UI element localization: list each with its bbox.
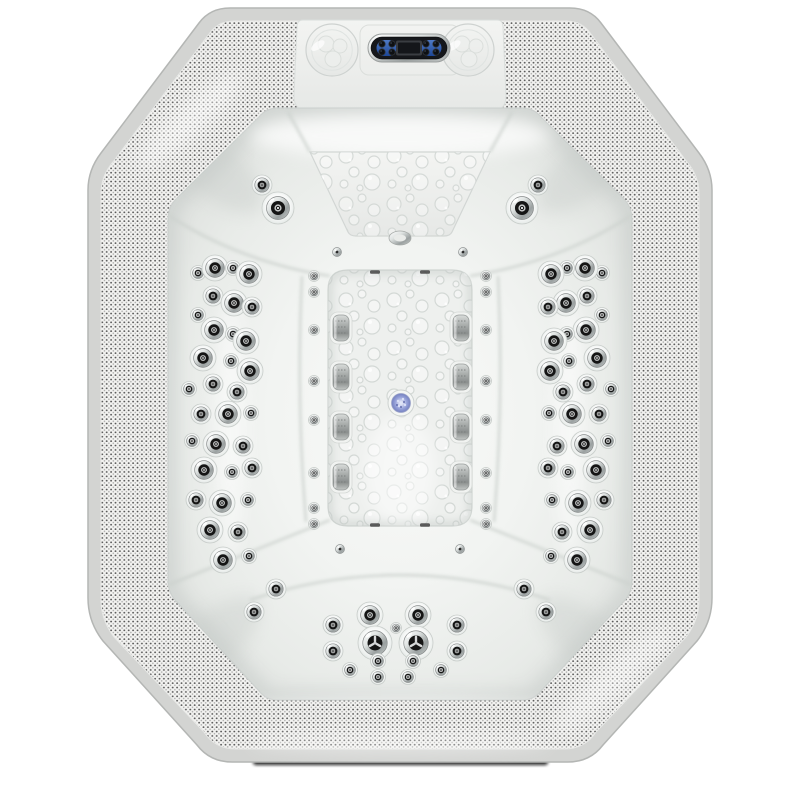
pillow-jet [450, 312, 472, 344]
jet [233, 436, 253, 456]
jet [481, 271, 492, 282]
pillow-jet [330, 361, 352, 393]
jet [309, 376, 320, 387]
panel-button [389, 49, 395, 55]
jet [447, 641, 467, 661]
oval-chrome-fitting [389, 231, 411, 245]
floor-drain-light [388, 390, 414, 416]
rim-sheen [250, 730, 550, 754]
jet [565, 490, 591, 516]
panel-button [423, 41, 429, 47]
pillow-jet [450, 461, 472, 493]
jet [242, 549, 257, 564]
pillow-jet [330, 411, 352, 443]
jet [224, 354, 239, 369]
jet [545, 493, 560, 508]
jet [434, 663, 449, 678]
jet [589, 404, 609, 424]
jet [391, 623, 402, 634]
jet [357, 602, 383, 628]
jet [577, 374, 597, 394]
jet [242, 297, 262, 317]
lcd-display [398, 43, 420, 54]
jet [538, 297, 558, 317]
jet [572, 255, 598, 281]
jet [182, 382, 197, 397]
jet [186, 490, 206, 510]
jet [481, 376, 492, 387]
jet [244, 406, 259, 421]
vent-slot [420, 523, 430, 527]
jet [584, 345, 610, 371]
jet [252, 175, 272, 195]
jet [544, 549, 559, 564]
jet [309, 468, 320, 479]
jet [323, 615, 343, 635]
jet [536, 602, 556, 622]
jet [323, 641, 343, 661]
panel-button [423, 49, 429, 55]
chrome-ball-fitting [456, 545, 465, 554]
jet [564, 547, 590, 573]
jet [227, 382, 247, 402]
jet [481, 468, 492, 479]
panel-button [379, 49, 385, 55]
jet [542, 406, 557, 421]
jet [233, 328, 259, 354]
jet [309, 271, 320, 282]
hot-tub-illustration [0, 0, 800, 800]
jet [559, 401, 585, 427]
jet [577, 517, 603, 543]
jet [577, 286, 597, 306]
jet [481, 287, 492, 298]
chrome-ball-fitting [336, 545, 345, 554]
jet [481, 325, 492, 336]
jet [506, 192, 538, 224]
hot-tub-product-photo [0, 0, 800, 800]
jet [601, 434, 616, 449]
jet [561, 465, 576, 480]
chrome-ball-fitting [459, 248, 468, 257]
jet [185, 434, 200, 449]
jet [209, 490, 235, 516]
jet [244, 602, 264, 622]
jet [541, 328, 567, 354]
jet [514, 579, 534, 599]
jet [604, 382, 619, 397]
jet [241, 493, 256, 508]
jet [236, 261, 262, 287]
jet [210, 547, 236, 573]
jet [447, 615, 467, 635]
panel-button [389, 41, 395, 47]
jet [401, 670, 416, 685]
pillow-jet [450, 361, 472, 393]
jet [371, 654, 386, 669]
jet [191, 404, 211, 424]
jet [190, 345, 216, 371]
jet [202, 255, 228, 281]
jet [552, 522, 572, 542]
jet [573, 317, 599, 343]
vent-slot [370, 523, 380, 527]
panel-button [379, 41, 385, 47]
control-panel [368, 34, 450, 62]
pillow-jet [450, 411, 472, 443]
panel-button [433, 49, 439, 55]
jet [538, 261, 564, 287]
jet [266, 579, 286, 599]
jet [583, 457, 609, 483]
jet [537, 358, 563, 384]
jet [571, 431, 597, 457]
jet [203, 374, 223, 394]
jet [203, 431, 229, 457]
jet [309, 519, 320, 530]
jet [553, 382, 573, 402]
jet [309, 325, 320, 336]
panel-button [433, 41, 439, 47]
jet [201, 317, 227, 343]
jet [481, 503, 492, 514]
jet [547, 436, 567, 456]
jet [406, 654, 421, 669]
jet [191, 308, 206, 323]
deck-speaker-cover [306, 24, 358, 76]
jet [371, 670, 386, 685]
jet [237, 358, 263, 384]
jet [215, 401, 241, 427]
jet [538, 458, 558, 478]
pillow-jet [330, 312, 352, 344]
jet [225, 465, 240, 480]
jet [309, 415, 320, 426]
jet [309, 287, 320, 298]
jet [343, 663, 358, 678]
jet [242, 458, 262, 478]
drain-led-light [388, 390, 414, 416]
jet [228, 522, 248, 542]
jet [191, 457, 217, 483]
jet [203, 286, 223, 306]
jet [595, 308, 610, 323]
pillow-jet [330, 461, 352, 493]
vent-slot [370, 270, 380, 274]
jet [197, 517, 223, 543]
jet [481, 519, 492, 530]
jet [481, 415, 492, 426]
jet [309, 503, 320, 514]
jet [594, 490, 614, 510]
jet [262, 192, 294, 224]
vent-slot [420, 270, 430, 274]
jet [562, 354, 577, 369]
jet [528, 175, 548, 195]
chrome-ball-fitting [333, 248, 342, 257]
jet [405, 602, 431, 628]
